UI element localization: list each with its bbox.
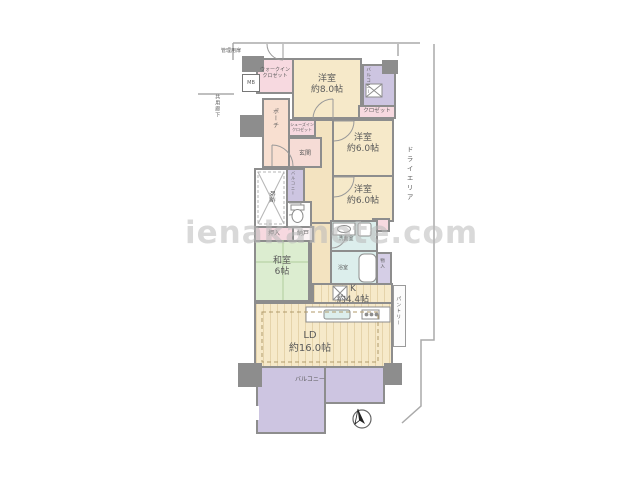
meter-box (242, 74, 260, 92)
dry-area-label: ドライエリア (405, 146, 413, 203)
balcony-bottom-right (324, 366, 385, 404)
room-bedroom-6a (332, 119, 394, 177)
entrance-genkan (288, 137, 322, 168)
closet-strip (358, 105, 396, 119)
floorplan-canvas: 管理用扉 共用廊下 MB ウォークイン クロゼット 洋室 約8.0帖 バルコニー… (0, 0, 640, 480)
porch (262, 98, 290, 168)
management-door-label: 管理用扉 (214, 48, 248, 54)
balcony-middle (286, 168, 305, 203)
room-washitsu (254, 240, 310, 302)
pillar-left-mid (238, 363, 262, 387)
bathroom (330, 250, 378, 285)
shoes-in-closet (288, 119, 316, 137)
pillar-top-left (242, 56, 264, 72)
pantry-strip (393, 285, 406, 347)
common-corridor-label: 共用廊下 (214, 94, 220, 118)
pillar-right-bottom (384, 363, 402, 385)
room-bedroom-8 (292, 58, 362, 119)
toilet-room (286, 201, 312, 228)
living-dining-floor (254, 302, 393, 368)
pillar-porch (240, 115, 262, 137)
compass-icon (353, 409, 371, 428)
balcony-bottom-left (256, 366, 326, 434)
room-bedroom-6b (332, 175, 394, 222)
pillar-top-right (382, 60, 398, 74)
void-fukinuke (254, 168, 288, 228)
washroom-senmen (330, 220, 378, 252)
